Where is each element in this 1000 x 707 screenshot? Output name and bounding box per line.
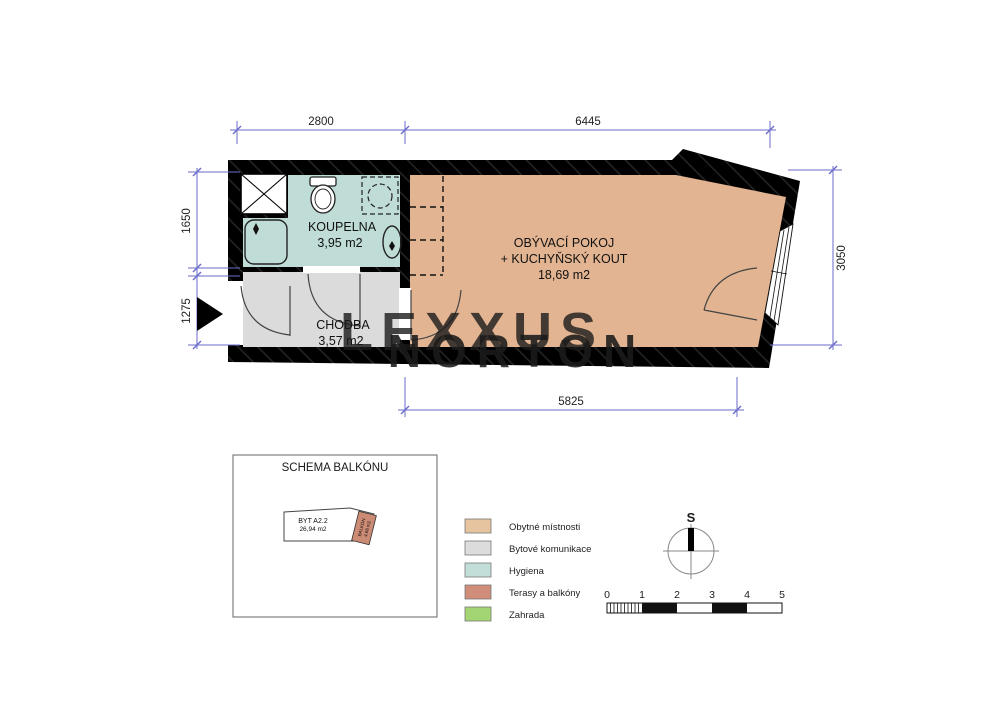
legend-row: Zahrada: [465, 607, 545, 621]
legend-row: Bytové komunikace: [465, 541, 591, 555]
legend-swatch-hygiena: [465, 563, 491, 577]
scale-tick-0: 0: [604, 589, 610, 601]
legend-label-hygiena: Hygiena: [509, 566, 545, 577]
schema-unit-area: 26,94 m2: [299, 526, 326, 533]
entrance-arrow-icon: [197, 297, 223, 331]
scale-bar: 0 1 2 3 4 5: [604, 589, 785, 613]
living-room-label-2: + KUCHYŇSKÝ KOUT: [501, 251, 628, 266]
dim-left-lower: 1275: [181, 298, 193, 324]
bathroom-label: KOUPELNA: [308, 220, 377, 234]
compass-north-label: S: [687, 510, 696, 525]
legend-row: Terasy a balkóny: [465, 585, 581, 599]
entrance-opening: [227, 281, 243, 345]
floorplan-drawing: KOUPELNA 3,95 m2 CHODBA 3,57 m2 OBÝVACÍ …: [0, 0, 1000, 707]
scale-tick-2: 2: [674, 589, 680, 601]
legend-label-zahrada: Zahrada: [509, 610, 545, 621]
shaft: [241, 174, 287, 214]
legend-swatch-obytne: [465, 519, 491, 533]
bathroom-area: 3,95 m2: [317, 236, 362, 250]
legend-row: Obytné místnosti: [465, 519, 580, 533]
scale-tick-4: 4: [744, 589, 750, 601]
legend: Obytné místnosti Bytové komunikace Hygie…: [465, 519, 591, 621]
scale-tick-5: 5: [779, 589, 785, 601]
scale-tick-1: 1: [639, 589, 645, 601]
living-room-label-1: OBÝVACÍ POKOJ: [514, 235, 615, 250]
balcony-schema: SCHEMA BALKÓNU BALKÓN 4,98 m2 BYT A2.2 2…: [233, 455, 437, 617]
legend-label-komunikace: Bytové komunikace: [509, 544, 591, 555]
legend-swatch-terasy: [465, 585, 491, 599]
living-room-area: 18,69 m2: [538, 268, 590, 282]
bathroom-door-opening: [303, 266, 360, 273]
scale-tick-3: 3: [709, 589, 715, 601]
dim-top-left: 2800: [308, 116, 334, 128]
legend-label-terasy: Terasy a balkóny: [509, 588, 581, 599]
legend-label-obytne: Obytné místnosti: [509, 522, 580, 533]
legend-swatch-komunikace: [465, 541, 491, 555]
dim-right: 3050: [836, 245, 848, 271]
schema-unit-name: BYT A2.2: [298, 518, 328, 525]
watermark-line2: NORTON: [388, 325, 647, 377]
dim-left-upper: 1650: [181, 208, 193, 234]
compass-icon: S: [663, 510, 719, 579]
balcony-schema-title: SCHEMA BALKÓNU: [282, 461, 389, 474]
dim-bottom: 5825: [558, 396, 584, 408]
floorplan-page: KOUPELNA 3,95 m2 CHODBA 3,57 m2 OBÝVACÍ …: [0, 0, 1000, 707]
watermark: LEXXUS NORTON: [340, 302, 646, 377]
dim-top-right: 6445: [575, 116, 601, 128]
legend-swatch-zahrada: [465, 607, 491, 621]
legend-row: Hygiena: [465, 563, 545, 577]
toilet: [310, 177, 336, 213]
